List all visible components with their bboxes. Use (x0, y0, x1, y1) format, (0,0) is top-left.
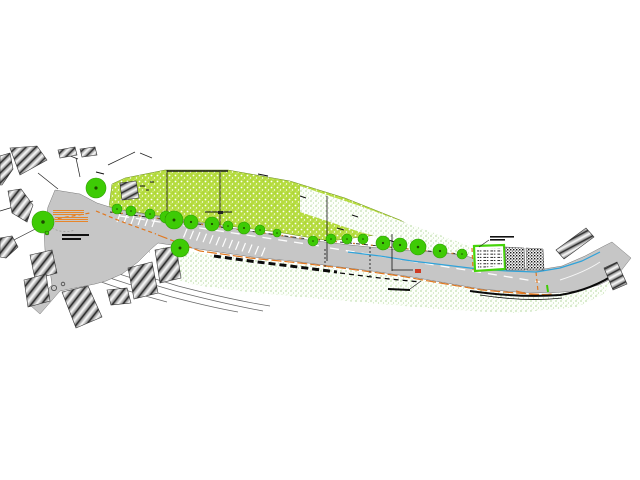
tree-symbol (410, 239, 426, 255)
tree-symbol (376, 236, 390, 250)
tree-symbol (393, 238, 407, 252)
hill-mark (96, 172, 104, 174)
scale-bar (388, 289, 410, 290)
tree-trunk-dot (130, 210, 132, 212)
tree-trunk-dot (312, 240, 314, 242)
tree-symbol (165, 211, 183, 229)
site-plan-page (0, 0, 640, 480)
tree-symbol (126, 206, 136, 216)
tree-symbol (145, 209, 155, 219)
tree-trunk-dot (417, 246, 420, 249)
hatched-building (58, 147, 77, 158)
hatched-building (10, 146, 47, 175)
hatched-building (62, 286, 102, 328)
tree-symbol (184, 215, 198, 229)
speckled-panel-1 (505, 247, 525, 270)
boundary-line (108, 152, 135, 165)
hatched-building (120, 181, 139, 200)
tree-trunk-dot (116, 208, 118, 210)
red-marker (415, 269, 421, 273)
tree-symbol (457, 249, 467, 259)
tree-trunk-dot (41, 220, 45, 224)
tree-trunk-dot (243, 227, 245, 229)
tree-symbol (32, 211, 54, 233)
bus-stop-detail-glyphs (477, 248, 502, 268)
tree-symbol (308, 236, 318, 246)
bus-stop-note-text-bar (490, 239, 505, 241)
plaza-note-text-bar (62, 238, 81, 240)
tree-symbol (205, 217, 219, 231)
hill-structure-mark (218, 211, 223, 214)
tree-trunk-dot (190, 221, 192, 223)
hatched-building (80, 147, 97, 157)
bus-stop-note-text-bar (490, 236, 514, 238)
hatched-building (8, 189, 33, 222)
speckled-panel-2 (526, 248, 544, 270)
tree-symbol (112, 204, 122, 214)
hatched-building (107, 288, 131, 305)
boundary-line (38, 173, 58, 189)
site-plan-canvas (0, 0, 640, 480)
tree-trunk-dot (362, 238, 364, 240)
hatched-building (24, 274, 50, 307)
hatched-building (128, 262, 158, 299)
tree-symbol (326, 234, 336, 244)
tree-trunk-dot (399, 244, 401, 246)
tree-symbol (342, 234, 352, 244)
tree-symbol (273, 229, 281, 237)
tree-symbol (255, 225, 265, 235)
tree-trunk-dot (330, 238, 332, 240)
tree-trunk-dot (439, 250, 441, 252)
tree-trunk-dot (211, 223, 213, 225)
tree-trunk-dot (346, 238, 348, 240)
tree-symbol (238, 222, 250, 234)
boundary-line (76, 158, 80, 177)
tree-trunk-dot (179, 247, 182, 250)
tree-trunk-dot (227, 225, 229, 227)
green-shrub-mark (45, 231, 49, 235)
tree-symbol (171, 239, 189, 257)
tree-symbol (433, 244, 447, 258)
bus-label (490, 236, 514, 241)
green-sapling-mark (547, 285, 548, 292)
tree-trunk-dot (173, 219, 176, 222)
hatched-building (0, 153, 13, 185)
tree-trunk-dot (276, 232, 278, 234)
tree-symbol (358, 234, 368, 244)
boundary-line (140, 153, 152, 158)
tree-trunk-dot (461, 253, 463, 255)
tree-trunk-dot (94, 186, 97, 189)
tree-trunk-dot (382, 242, 384, 244)
tree-trunk-dot (149, 213, 151, 215)
tree-trunk-dot (259, 229, 261, 231)
tree-symbol (223, 221, 233, 231)
tree-symbol (86, 178, 106, 198)
plaza-note-text-bar (62, 234, 89, 236)
